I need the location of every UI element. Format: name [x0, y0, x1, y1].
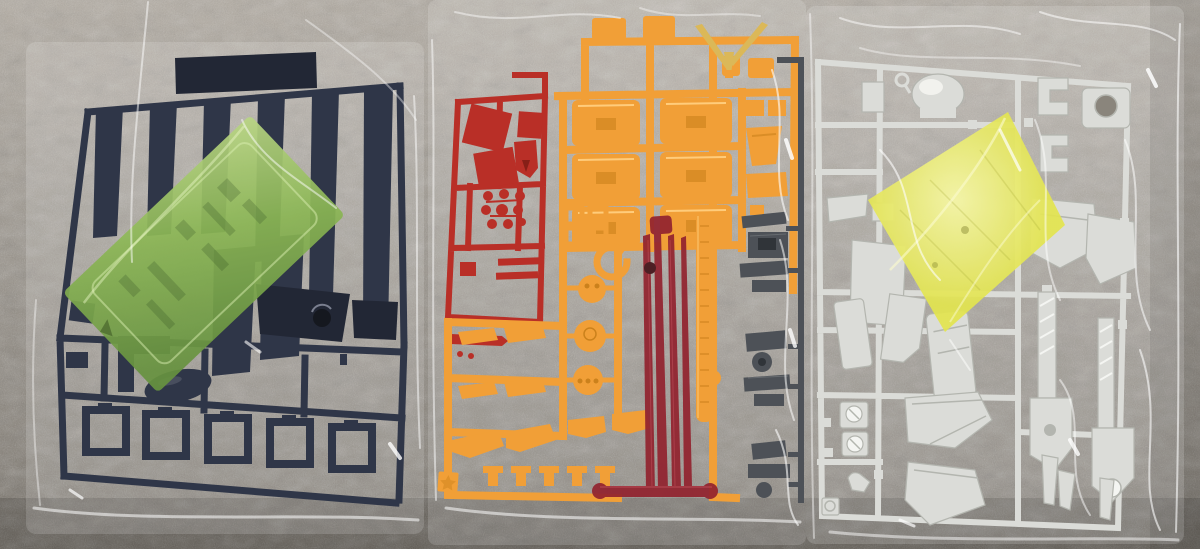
left-bag: [26, 2, 424, 534]
middle-bag-sheen: [428, 0, 806, 545]
photo-model-kit-runners: [0, 0, 1200, 549]
left-bag-sheen: [26, 42, 424, 534]
right-bag: [806, 6, 1184, 544]
right-bag-sheen: [806, 6, 1184, 544]
middle-bag: [428, 0, 806, 545]
